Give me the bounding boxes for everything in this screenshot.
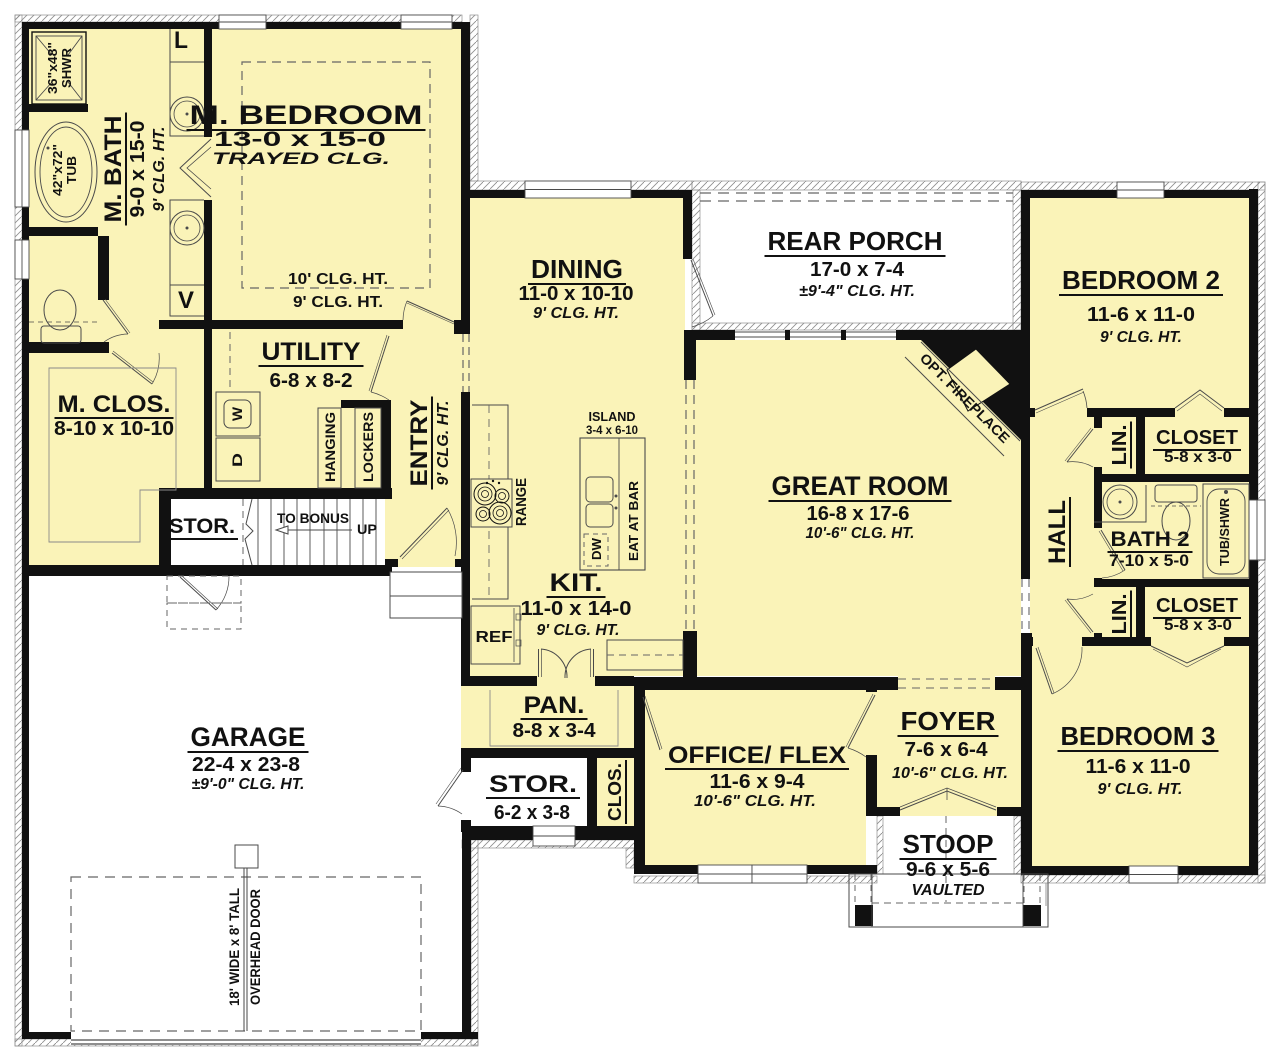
svg-text:L: L <box>174 27 188 54</box>
svg-text:9' CLG. HT.: 9' CLG. HT. <box>293 294 383 311</box>
svg-text:VAULTED: VAULTED <box>912 882 985 899</box>
svg-text:EAT AT BAR: EAT AT BAR <box>626 480 641 561</box>
svg-text:BEDROOM 2: BEDROOM 2 <box>1062 265 1220 295</box>
svg-text:42"x72": 42"x72" <box>50 144 65 196</box>
svg-text:STOOP: STOOP <box>903 829 994 859</box>
svg-text:6-8 x 8-2: 6-8 x 8-2 <box>270 370 353 392</box>
svg-text:TRAYED CLG.: TRAYED CLG. <box>212 149 390 168</box>
svg-text:KIT.: KIT. <box>550 569 603 597</box>
svg-text:RANGE: RANGE <box>513 478 530 526</box>
svg-text:9-6 x 5-6: 9-6 x 5-6 <box>906 859 990 881</box>
svg-text:CLOSET: CLOSET <box>1156 595 1238 617</box>
svg-text:7-10 x 5-0: 7-10 x 5-0 <box>1109 551 1189 570</box>
svg-text:UTILITY: UTILITY <box>262 338 361 366</box>
svg-text:9' CLG. HT.: 9' CLG. HT. <box>537 622 620 639</box>
svg-text:±9'-4" CLG. HT.: ±9'-4" CLG. HT. <box>799 283 915 300</box>
svg-text:11-6 x 11-0: 11-6 x 11-0 <box>1087 304 1195 326</box>
svg-text:5-8 x 3-0: 5-8 x 3-0 <box>1164 449 1232 466</box>
svg-text:PAN.: PAN. <box>524 692 585 719</box>
svg-text:9' CLG. HT.: 9' CLG. HT. <box>1100 329 1182 346</box>
svg-text:7-6 x 6-4: 7-6 x 6-4 <box>905 739 989 761</box>
svg-text:9-0 x 15-0: 9-0 x 15-0 <box>127 121 149 218</box>
svg-text:18' WIDE x 8' TALL: 18' WIDE x 8' TALL <box>226 888 242 1006</box>
svg-text:13-0 x 15-0: 13-0 x 15-0 <box>214 128 386 151</box>
svg-text:3-4 x 6-10: 3-4 x 6-10 <box>586 423 638 437</box>
svg-text:11-0 x 14-0: 11-0 x 14-0 <box>521 598 632 620</box>
svg-text:10'-6" CLG. HT.: 10'-6" CLG. HT. <box>694 793 816 810</box>
svg-text:ISLAND: ISLAND <box>589 409 636 424</box>
svg-text:9' CLG. HT.: 9' CLG. HT. <box>151 127 168 212</box>
svg-text:V: V <box>178 287 194 314</box>
svg-text:OVERHEAD DOOR: OVERHEAD DOOR <box>247 889 263 1005</box>
svg-text:W: W <box>229 406 245 421</box>
svg-text:CLOSET: CLOSET <box>1156 427 1238 449</box>
svg-text:8-8 x 3-4: 8-8 x 3-4 <box>513 720 597 742</box>
svg-text:TUB/SHWR: TUB/SHWR <box>1217 497 1232 566</box>
svg-text:D: D <box>229 453 245 467</box>
svg-text:LIN.: LIN. <box>1109 425 1131 466</box>
svg-text:17-0 x 7-4: 17-0 x 7-4 <box>810 259 905 281</box>
svg-text:SHWR: SHWR <box>59 47 74 88</box>
svg-text:TO BONUS: TO BONUS <box>277 510 349 526</box>
svg-text:DW: DW <box>589 537 604 560</box>
svg-text:GARAGE: GARAGE <box>191 722 306 752</box>
svg-text:8-10 x 10-10: 8-10 x 10-10 <box>54 418 174 440</box>
svg-text:22-4 x 23-8: 22-4 x 23-8 <box>192 754 300 776</box>
svg-text:LIN.: LIN. <box>1109 594 1131 635</box>
svg-text:9' CLG. HT.: 9' CLG. HT. <box>533 305 619 322</box>
svg-text:REAR PORCH: REAR PORCH <box>768 226 943 256</box>
svg-text:11-6 x 9-4: 11-6 x 9-4 <box>710 771 806 793</box>
svg-text:5-8 x 3-0: 5-8 x 3-0 <box>1164 617 1232 634</box>
svg-text:M. CLOS.: M. CLOS. <box>58 391 171 418</box>
svg-text:STOR.: STOR. <box>489 771 577 798</box>
svg-text:10' CLG. HT.: 10' CLG. HT. <box>288 271 388 288</box>
svg-text:10'-6" CLG. HT.: 10'-6" CLG. HT. <box>806 525 915 542</box>
svg-text:CLOS.: CLOS. <box>605 763 625 821</box>
svg-text:HALL: HALL <box>1044 500 1071 564</box>
svg-text:DINING: DINING <box>531 254 623 284</box>
svg-text:UP: UP <box>357 521 377 537</box>
svg-text:REF: REF <box>476 629 513 646</box>
svg-text:36"x48": 36"x48" <box>45 42 60 94</box>
svg-text:11-6 x 11-0: 11-6 x 11-0 <box>1086 756 1191 778</box>
svg-text:11-0 x 10-10: 11-0 x 10-10 <box>519 283 634 305</box>
svg-text:STOR.: STOR. <box>169 515 235 538</box>
svg-text:M. BATH: M. BATH <box>100 116 127 223</box>
svg-text:M. BEDROOM: M. BEDROOM <box>190 100 423 130</box>
svg-text:6-2 x 3-8: 6-2 x 3-8 <box>494 802 570 824</box>
svg-text:HANGING: HANGING <box>322 412 338 482</box>
svg-text:16-8 x 17-6: 16-8 x 17-6 <box>807 503 910 525</box>
svg-text:GREAT ROOM: GREAT ROOM <box>772 471 949 501</box>
svg-text:FOYER: FOYER <box>901 706 996 736</box>
svg-text:±9'-0" CLG. HT.: ±9'-0" CLG. HT. <box>192 776 305 793</box>
svg-text:BEDROOM 3: BEDROOM 3 <box>1061 721 1216 751</box>
svg-text:BATH 2: BATH 2 <box>1111 528 1190 551</box>
svg-text:9' CLG. HT.: 9' CLG. HT. <box>435 401 452 486</box>
svg-text:OFFICE/ FLEX: OFFICE/ FLEX <box>668 742 846 769</box>
svg-text:TUB: TUB <box>64 156 79 184</box>
svg-text:LOCKERS: LOCKERS <box>360 412 376 482</box>
svg-text:10'-6" CLG. HT.: 10'-6" CLG. HT. <box>892 765 1008 782</box>
svg-text:9' CLG. HT.: 9' CLG. HT. <box>1098 781 1183 798</box>
svg-text:ENTRY: ENTRY <box>406 400 433 487</box>
